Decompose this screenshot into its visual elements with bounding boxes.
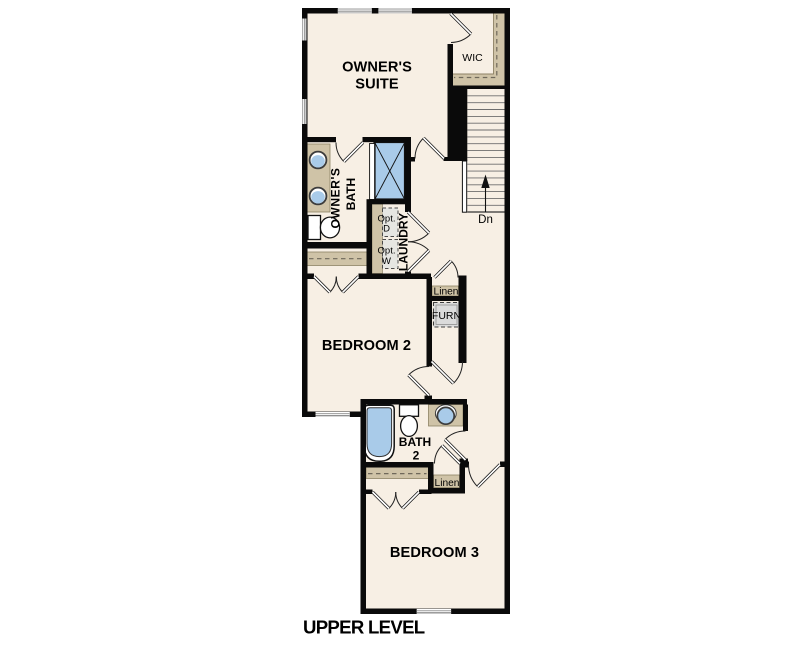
svg-text:UPPER LEVEL: UPPER LEVEL	[303, 617, 425, 638]
svg-text:Linen: Linen	[435, 478, 460, 489]
svg-text:Dn: Dn	[478, 214, 493, 226]
svg-text:BATH: BATH	[399, 435, 431, 449]
svg-text:Opt.: Opt.	[378, 245, 396, 256]
svg-text:BEDROOM 3: BEDROOM 3	[390, 545, 479, 561]
svg-text:W: W	[382, 256, 391, 267]
svg-text:2: 2	[413, 449, 420, 463]
svg-text:BATH: BATH	[344, 178, 358, 210]
svg-text:OWNER'S: OWNER'S	[329, 167, 343, 228]
svg-text:Linen: Linen	[434, 287, 459, 298]
svg-text:BEDROOM 2: BEDROOM 2	[322, 338, 411, 354]
svg-text:FURN: FURN	[432, 310, 461, 322]
svg-text:SUITE: SUITE	[355, 77, 399, 93]
svg-text:LAUNDRY: LAUNDRY	[397, 213, 411, 271]
svg-text:WIC: WIC	[462, 52, 483, 64]
svg-text:D: D	[383, 224, 390, 235]
svg-text:OWNER'S: OWNER'S	[342, 60, 412, 76]
